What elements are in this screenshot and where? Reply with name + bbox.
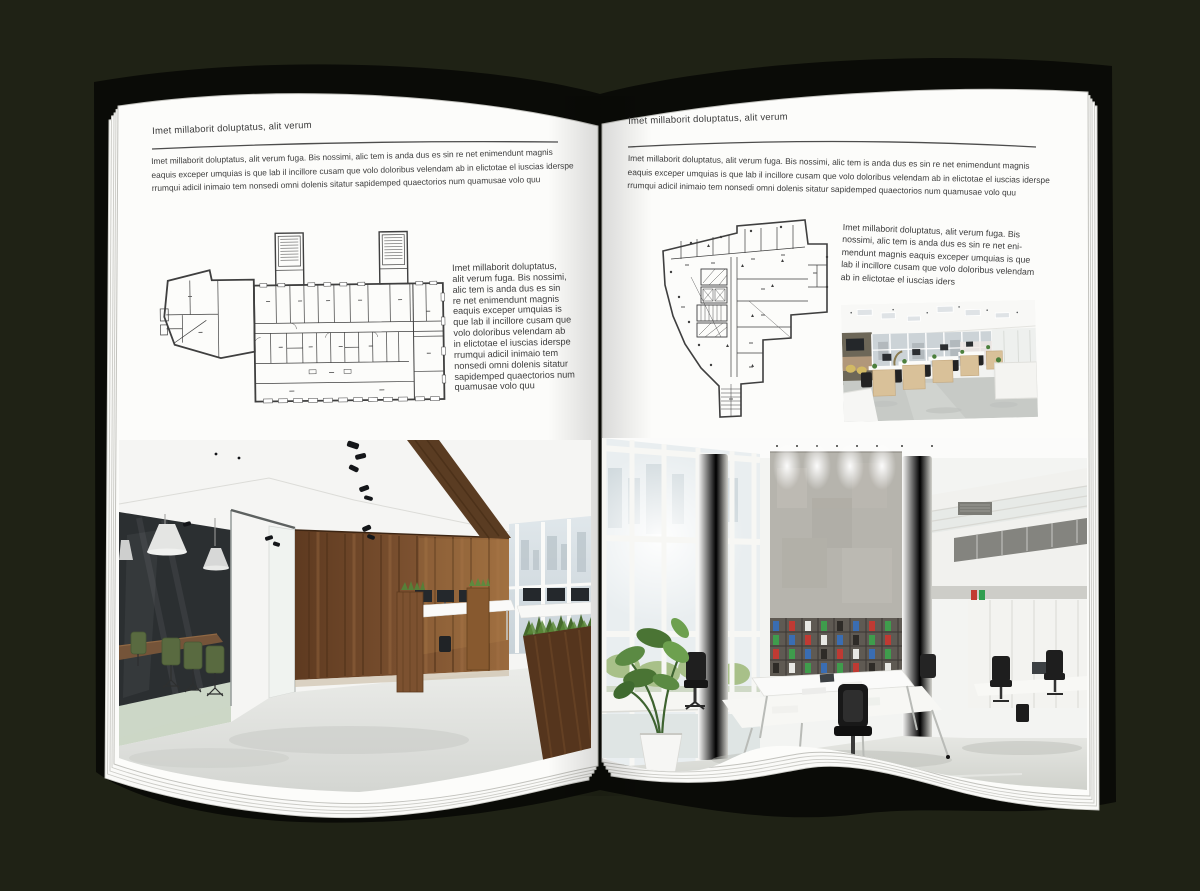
left-floor-plan-figure [157,221,452,417]
concrete-wall [770,442,902,618]
right-floor-plan-figure [641,217,843,424]
left-photo-caption: Imet millaborit doluptatus, alit verum f… [452,260,575,393]
bookshelf [770,618,902,676]
magazine-spread-mockup: Imet millaborit doluptatus, alit verum I… [0,0,1200,891]
right-intro-paragraph: Imet millaborit doluptatus, alit verum f… [627,152,1050,201]
left-office-photo [119,440,591,796]
glass-meeting-room [119,512,231,746]
small-office-photo [841,300,1038,422]
column [698,454,728,760]
right-office-photo [602,438,1087,794]
right-photo-caption: Imet millaborit doluptatus, alit verum f… [840,221,1036,291]
waste-bin [1016,704,1029,722]
right-header-rule [627,136,1039,150]
